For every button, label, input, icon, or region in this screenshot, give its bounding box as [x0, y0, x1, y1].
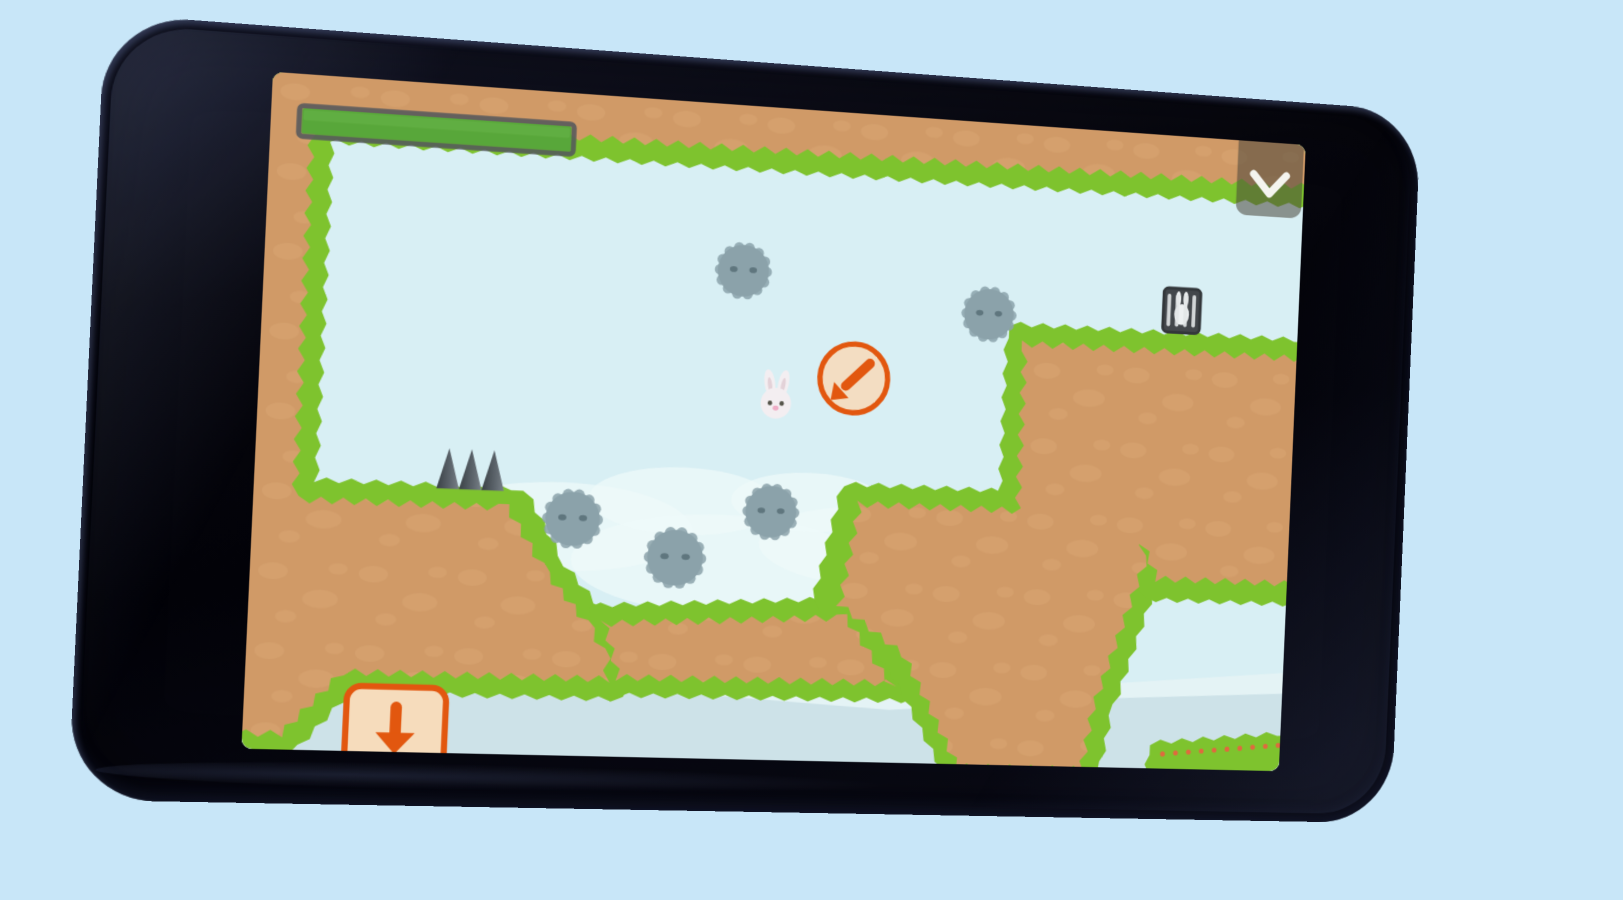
page-background: [0, 0, 1623, 900]
hint-ring-arrow-down-left: [818, 342, 889, 414]
bunny-cage-icon: [1162, 288, 1201, 334]
collapse-button[interactable]: [1236, 131, 1305, 219]
game-screen[interactable]: [241, 72, 1305, 771]
game-canvas[interactable]: [241, 72, 1305, 771]
down-arrow-button[interactable]: [343, 686, 447, 772]
phone: [68, 14, 1421, 824]
